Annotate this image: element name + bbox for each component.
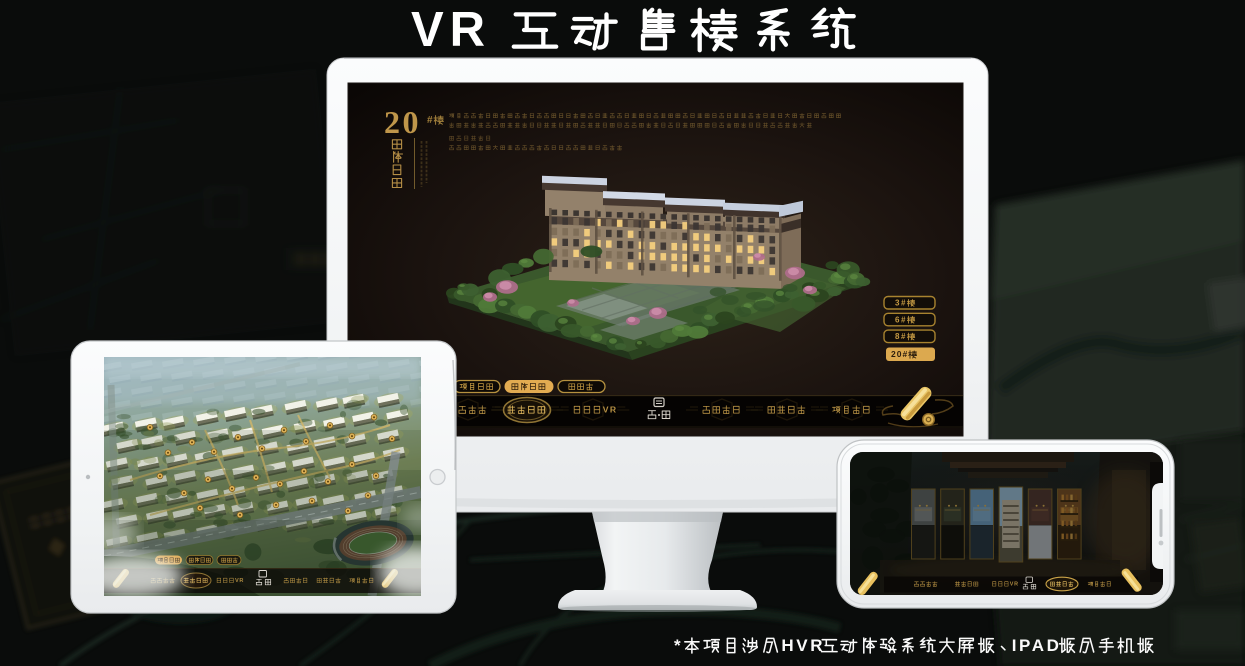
svg-text:8#: 8# [895,332,907,341]
svg-text:6#: 6# [895,315,907,324]
svg-text:#: # [427,115,434,126]
svg-text:HVR: HVR [781,636,825,655]
svg-text:20#: 20# [891,349,908,359]
svg-text:20: 20 [384,104,421,140]
svg-text:VR: VR [1010,582,1019,588]
svg-text:VR: VR [235,578,244,584]
svg-text:IPAD: IPAD [1012,636,1062,655]
svg-text:3#: 3# [895,299,907,308]
svg-text:*: * [674,636,683,655]
svg-text:VR: VR [411,3,491,57]
svg-text:VR: VR [603,405,618,415]
